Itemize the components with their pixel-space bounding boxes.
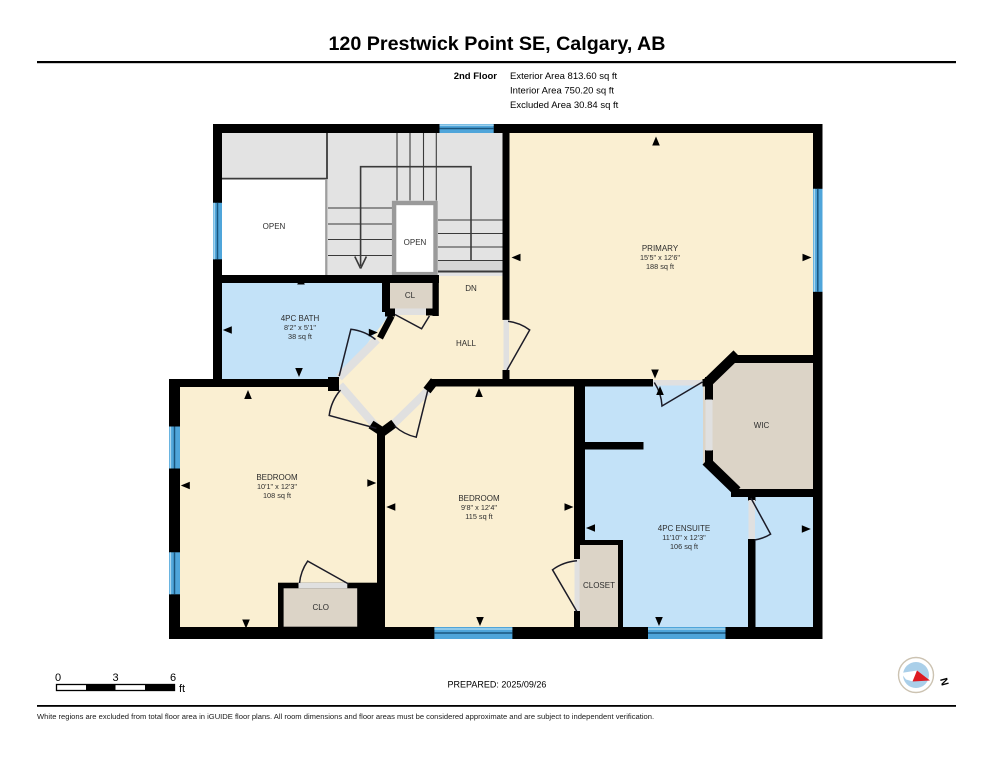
svg-text:Excluded Area 30.84 sq ft: Excluded Area 30.84 sq ft (510, 100, 619, 111)
svg-text:38 sq ft: 38 sq ft (288, 332, 312, 341)
svg-text:108 sq ft: 108 sq ft (263, 491, 291, 500)
svg-text:120 Prestwick Point SE, Calgar: 120 Prestwick Point SE, Calgary, AB (328, 33, 665, 55)
svg-text:N: N (937, 677, 951, 687)
svg-text:0: 0 (55, 672, 61, 684)
svg-text:White regions are excluded fro: White regions are excluded from total fl… (37, 712, 654, 721)
svg-text:BEDROOM: BEDROOM (458, 494, 500, 503)
svg-text:CL: CL (405, 291, 416, 300)
svg-text:188 sq ft: 188 sq ft (646, 262, 674, 271)
svg-text:OPEN: OPEN (263, 222, 286, 231)
svg-text:PRIMARY: PRIMARY (642, 244, 679, 253)
svg-text:9'8" x 12'4": 9'8" x 12'4" (461, 503, 497, 512)
svg-text:4PC BATH: 4PC BATH (281, 314, 320, 323)
svg-text:10'1" x 12'3": 10'1" x 12'3" (257, 482, 297, 491)
svg-text:PREPARED: 2025/09/26: PREPARED: 2025/09/26 (448, 680, 547, 690)
svg-text:15'5" x 12'6": 15'5" x 12'6" (640, 253, 680, 262)
svg-text:3: 3 (112, 672, 118, 684)
svg-text:115 sq ft: 115 sq ft (465, 512, 492, 521)
svg-text:6: 6 (170, 672, 176, 684)
svg-text:Exterior Area 813.60 sq ft: Exterior Area 813.60 sq ft (510, 71, 618, 82)
svg-text:2nd Floor: 2nd Floor (454, 71, 498, 82)
svg-text:Interior Area 750.20 sq ft: Interior Area 750.20 sq ft (510, 86, 614, 97)
svg-text:11'10" x 12'3": 11'10" x 12'3" (662, 533, 706, 542)
svg-text:4PC ENSUITE: 4PC ENSUITE (658, 524, 710, 533)
svg-text:BEDROOM: BEDROOM (256, 473, 298, 482)
svg-text:WIC: WIC (754, 421, 770, 430)
svg-text:ft: ft (179, 683, 185, 695)
svg-text:OPEN: OPEN (404, 238, 427, 247)
svg-text:CLOSET: CLOSET (583, 581, 615, 590)
svg-text:HALL: HALL (456, 339, 477, 348)
svg-text:CLO: CLO (312, 603, 328, 612)
svg-text:DN: DN (465, 284, 477, 293)
svg-text:8'2" x 5'1": 8'2" x 5'1" (284, 323, 316, 332)
svg-text:106 sq ft: 106 sq ft (670, 542, 698, 551)
